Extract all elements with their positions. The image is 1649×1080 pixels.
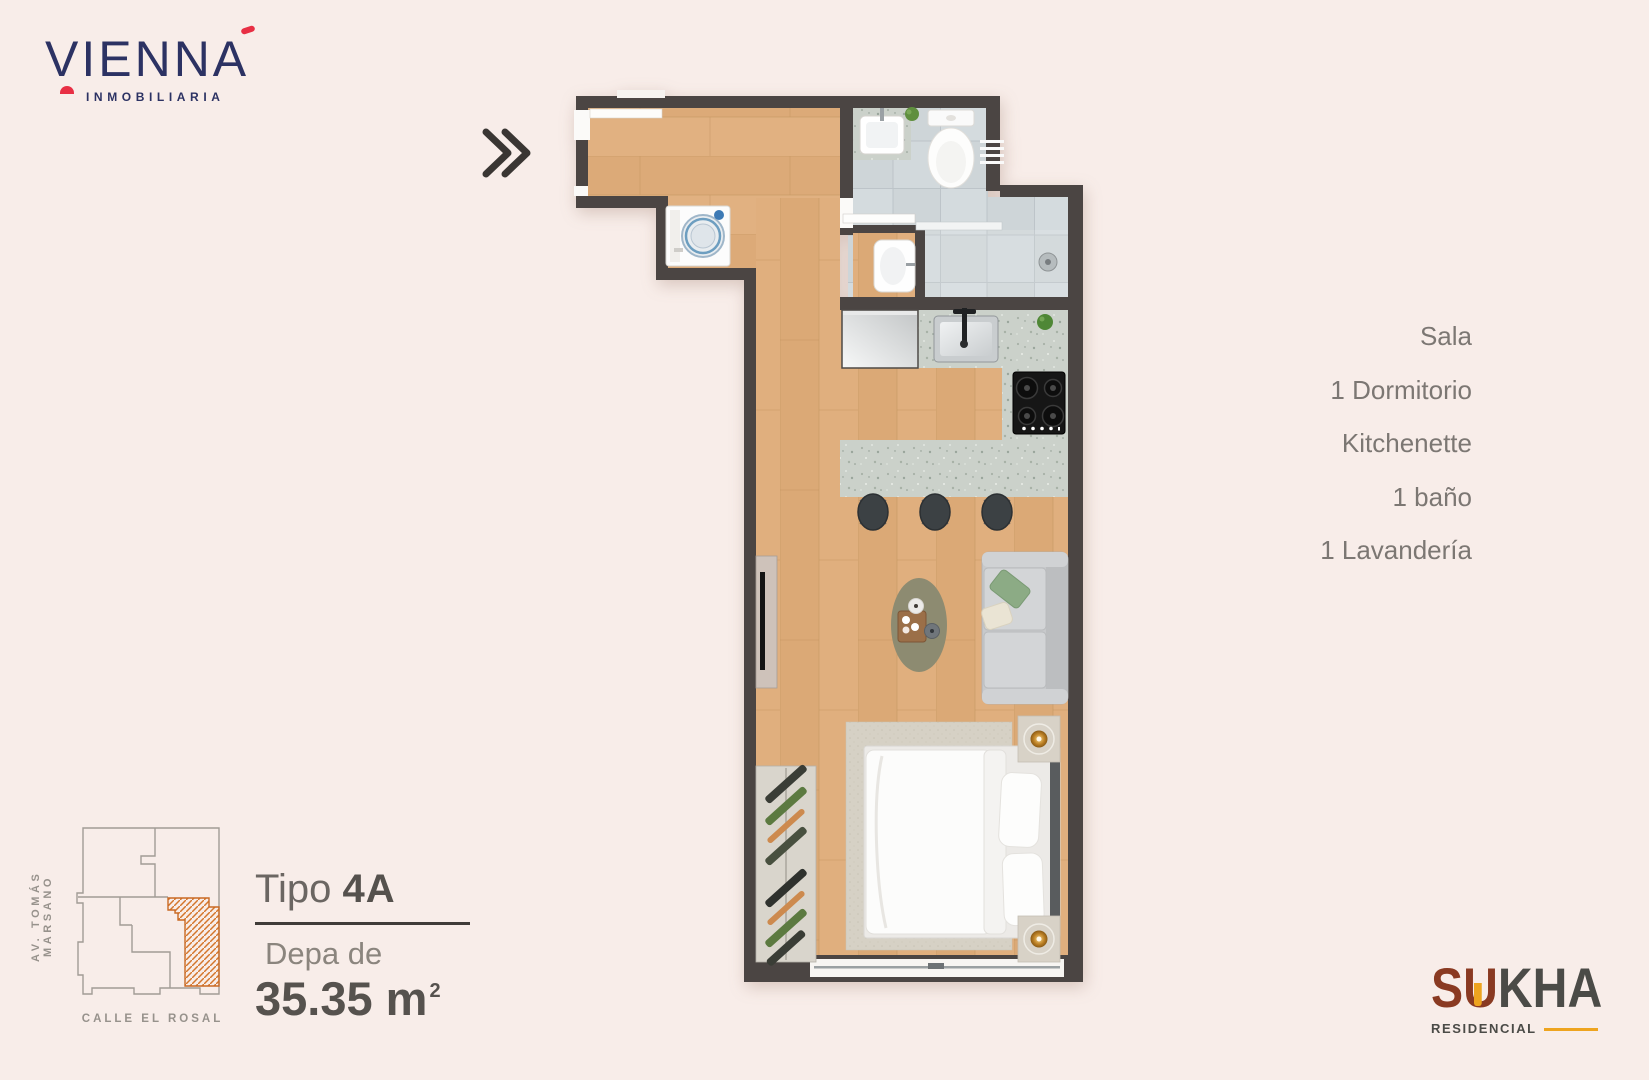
- divider-rule: [255, 922, 470, 925]
- sukha-su: SU: [1431, 956, 1498, 1019]
- unit-type-code: 4A: [342, 867, 395, 911]
- wall-jamb: [574, 186, 588, 196]
- pillow: [1002, 853, 1044, 926]
- washing-machine: [666, 206, 730, 266]
- unit-info: Tipo 4A Depa de 35.35 m2: [255, 868, 515, 1023]
- duvet: [866, 750, 992, 934]
- unit-area-value: 35.35 m2: [255, 974, 515, 1023]
- sukha-wordmark: SUKHA: [1431, 960, 1602, 1016]
- tv: [760, 572, 765, 670]
- flyer-canvas: VIENNA INMOBILIARIA Sala 1 Dormitorio Ki…: [0, 0, 1649, 1080]
- toilet: [928, 110, 974, 188]
- kitchen-sink: [934, 308, 998, 362]
- bathroom-door-opening: [840, 198, 853, 228]
- headboard: [1050, 756, 1060, 928]
- unit-type-label: Tipo: [255, 867, 331, 911]
- nightstand-bottom: [1018, 916, 1060, 962]
- area-exponent: 2: [429, 980, 440, 1002]
- pillow: [998, 772, 1042, 848]
- hallway-floor: [756, 198, 840, 300]
- bar-stools: [858, 494, 1012, 530]
- street-label-bottom: CALLE EL ROSAL: [70, 1013, 235, 1025]
- sukha-kha: KHA: [1498, 956, 1602, 1019]
- plant-icon: [905, 107, 919, 121]
- unit-area-label: Depa de: [265, 936, 515, 972]
- powder-room-slider: [843, 214, 915, 223]
- sukha-gold-line-icon: [1544, 1028, 1598, 1031]
- unit-highlight: [168, 898, 219, 986]
- entry-door-opening: [574, 110, 590, 140]
- sukha-logo: SUKHA RESIDENCIAL: [1431, 960, 1601, 1036]
- sofa: [980, 552, 1068, 704]
- refrigerator: [842, 310, 918, 368]
- plant-icon: [1037, 314, 1053, 330]
- kitchen-bar-counter: [840, 440, 1068, 497]
- tv-console: [756, 556, 777, 688]
- entry-door-leaf: [590, 109, 662, 118]
- site-map: [60, 818, 272, 1014]
- powder-basin: [874, 240, 915, 292]
- entry-door-threshold: [617, 90, 665, 98]
- faucet: [880, 108, 884, 121]
- sukha-gold-bar-icon: [1474, 983, 1482, 1006]
- closet: [756, 764, 816, 967]
- shower-glass: [916, 222, 1002, 230]
- bed: [864, 746, 1060, 938]
- nightstand-top: [1018, 716, 1060, 762]
- sukha-subtitle: RESIDENCIAL: [1431, 1021, 1601, 1036]
- entry-hall-floor: [588, 106, 840, 198]
- laundry: [666, 206, 730, 266]
- street-label-left: AV. TOMÁS MARSANO: [30, 832, 54, 1000]
- unit-type: Tipo 4A: [255, 868, 515, 910]
- cooktop: [1013, 372, 1065, 434]
- window-handle: [928, 963, 944, 969]
